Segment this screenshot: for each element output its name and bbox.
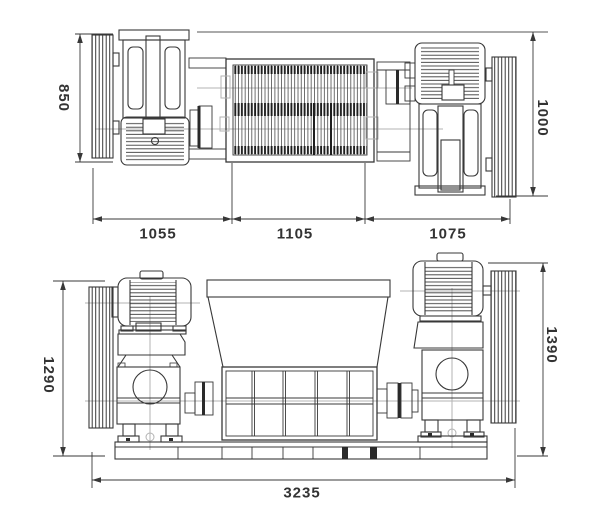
dim-label-1075: 1075 (429, 225, 466, 242)
dim-label-1105: 1105 (277, 225, 314, 242)
dim-label-3235: 3235 (283, 484, 320, 501)
right-pulley-front (491, 271, 516, 423)
dim-label-1055: 1055 (139, 225, 176, 242)
right-motor-top (415, 43, 485, 104)
left-motor-top (121, 117, 189, 165)
left-pulley-front (89, 287, 113, 428)
cutting-chamber-top (220, 59, 378, 162)
drawing-canvas: 850 1000 1055 1105 1075 (0, 0, 605, 519)
dim-label-1390: 1390 (543, 326, 560, 363)
dim-label-1290: 1290 (40, 356, 57, 393)
dim-label-1000: 1000 (534, 99, 551, 136)
dim-label-850: 850 (55, 84, 72, 112)
technical-drawing-page: 850 1000 1055 1105 1075 (0, 0, 605, 519)
